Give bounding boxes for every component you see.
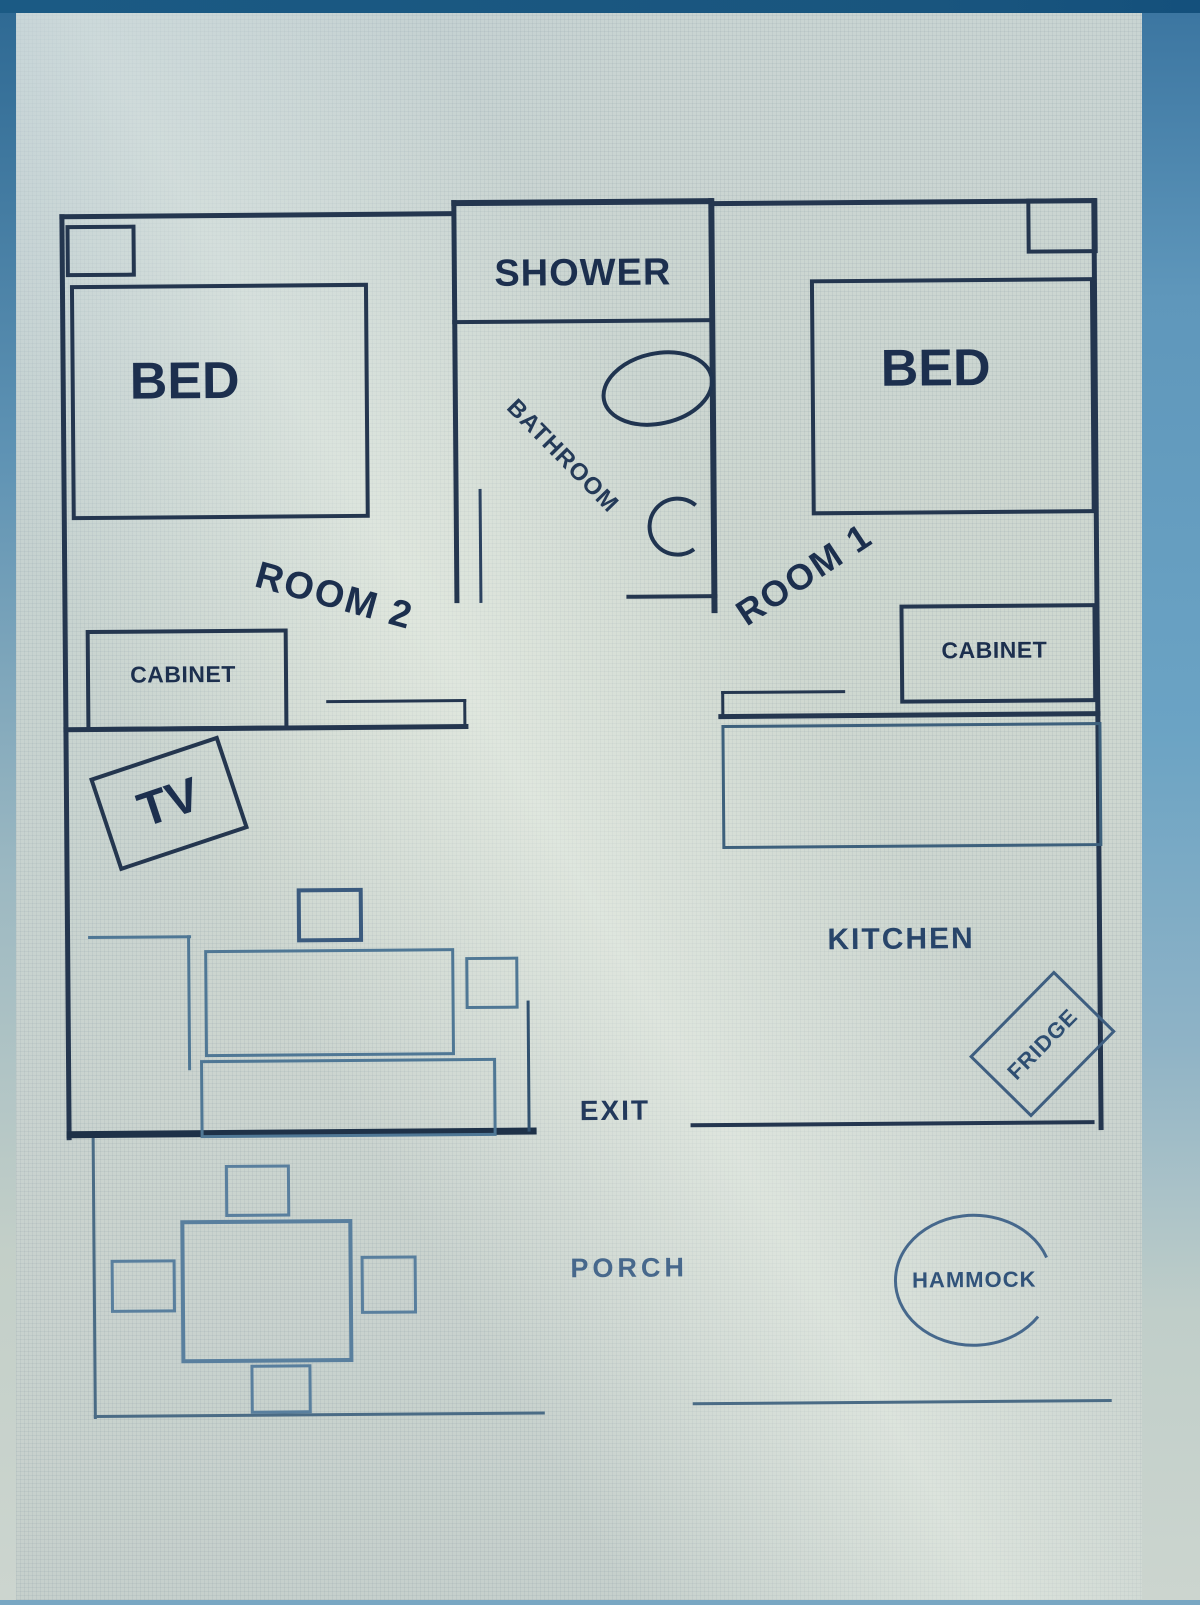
toilet-circle — [643, 491, 719, 567]
wall-room1-bottom — [718, 711, 1100, 719]
nightstand-right — [1026, 198, 1097, 254]
porch-edge-left — [92, 1138, 97, 1419]
sofa-long — [200, 1058, 497, 1138]
side-table — [297, 888, 363, 943]
bathroom-door-leaf — [479, 489, 483, 603]
kitchen-counter — [721, 722, 1102, 849]
porch-chair-right — [361, 1255, 417, 1313]
cabinet-right-label: CABINET — [900, 638, 1089, 662]
wall-hall-stub — [527, 1001, 531, 1132]
porch-chair-bottom — [250, 1364, 311, 1413]
kitchen-label: KITCHEN — [791, 924, 1011, 956]
fridge: FRIDGE — [969, 970, 1116, 1117]
room1-door-leaf — [721, 690, 845, 694]
room1-label: ROOM 1 — [711, 504, 898, 644]
cabinet-left-label: CABINET — [86, 663, 280, 688]
room2-door-jamb — [463, 699, 466, 727]
porch-chair-top — [225, 1164, 290, 1217]
nightstand-left — [65, 225, 135, 278]
room2-door-leaf — [326, 699, 466, 703]
tv-label: TV — [132, 771, 205, 836]
fridge-label: FRIDGE — [1003, 1005, 1081, 1084]
porch-label: PORCH — [547, 1254, 712, 1282]
tv-stand: TV — [89, 735, 249, 871]
sofa-side-square — [465, 957, 518, 1009]
sectional-edge-side — [187, 935, 191, 1070]
hammock-label: HAMMOCK — [902, 1269, 1047, 1292]
floor-plan: BED BED CABINET CABINET TV ROOM 2 ROOM 1… — [0, 0, 1200, 1605]
bathtub-oval — [594, 344, 723, 437]
wall-shower-divider — [452, 318, 714, 324]
porch-chair-left — [111, 1259, 176, 1313]
porch-table — [180, 1219, 353, 1363]
wall-shower-top — [451, 198, 713, 206]
porch-edge-bottom-right — [693, 1399, 1112, 1405]
sofa-main — [204, 948, 455, 1057]
wall-exit-right — [691, 1120, 1095, 1127]
wall-top-left — [59, 211, 453, 219]
sectional-edge-top — [88, 935, 191, 939]
exit-label: EXIT — [542, 1096, 687, 1125]
wall-bathroom-bottom — [626, 594, 717, 599]
shower-label: SHOWER — [452, 253, 714, 293]
bed-left-label: BED — [70, 354, 298, 408]
room1-door-jamb — [721, 691, 724, 716]
bed-right-label: BED — [810, 341, 1060, 395]
porch-edge-bottom-left — [94, 1411, 545, 1418]
